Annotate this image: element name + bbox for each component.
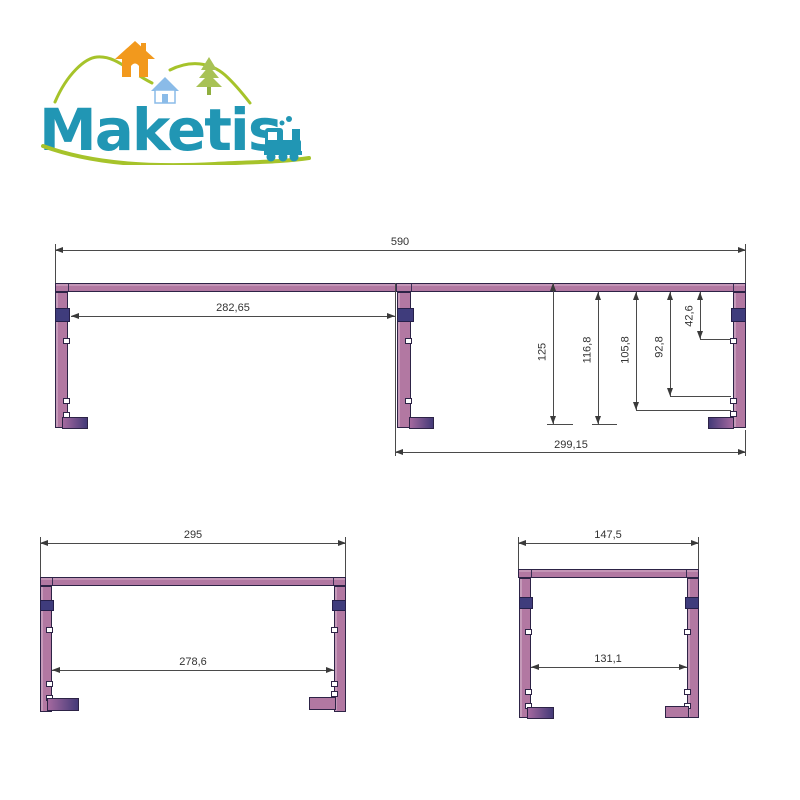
dim-label-inner-width: 131,1 — [592, 654, 624, 665]
corner-bracket-band — [685, 597, 699, 609]
notch — [684, 629, 691, 635]
dim-arrow — [531, 664, 539, 670]
notch — [525, 629, 532, 635]
dimension-line-inner-width — [531, 667, 687, 668]
notch — [684, 689, 691, 695]
page-canvas: Maketis 590 — [0, 0, 800, 800]
side-view-small-drawing: 147,5 131,1 — [0, 0, 800, 800]
notch — [525, 689, 532, 695]
rail-seam — [531, 570, 532, 577]
dim-label-overall-width: 147,5 — [592, 530, 624, 541]
top-rail — [518, 569, 699, 578]
dim-arrow — [679, 664, 687, 670]
foot-block — [527, 707, 554, 719]
dimension-line-overall-width — [518, 543, 699, 544]
dim-arrow — [518, 540, 526, 546]
foot-block — [665, 706, 689, 718]
rail-seam — [686, 570, 687, 577]
dim-arrow — [691, 540, 699, 546]
corner-bracket-band — [519, 597, 533, 609]
